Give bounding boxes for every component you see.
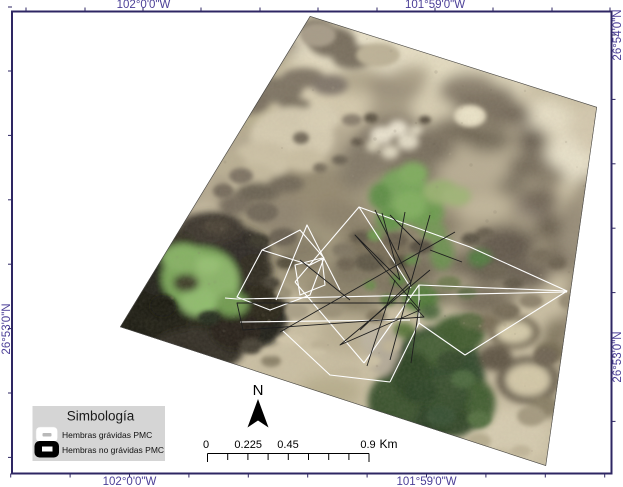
svg-text:0.45: 0.45: [277, 439, 298, 451]
svg-text:0: 0: [203, 439, 209, 451]
svg-text:102°0'0"W: 102°0'0"W: [103, 476, 157, 487]
svg-text:102°0'0"W: 102°0'0"W: [117, 0, 171, 11]
svg-text:Hembras no grávidas PMC: Hembras no grávidas PMC: [62, 445, 164, 455]
svg-text:N: N: [253, 382, 264, 399]
svg-text:101°59'0"W: 101°59'0"W: [396, 476, 456, 487]
svg-text:26°53'0"N: 26°53'0"N: [612, 331, 623, 382]
svg-text:101°59'0"W: 101°59'0"W: [405, 0, 465, 11]
svg-text:Simbología: Simbología: [67, 409, 135, 424]
svg-text:Km: Km: [380, 437, 398, 451]
svg-text:0.9: 0.9: [360, 439, 375, 451]
svg-text:26°53'0"N: 26°53'0"N: [1, 303, 13, 354]
svg-text:26°54'0"N: 26°54'0"N: [612, 9, 623, 60]
svg-text:0.225: 0.225: [234, 439, 262, 451]
svg-text:Hembras grávidas PMC: Hembras grávidas PMC: [62, 430, 152, 440]
